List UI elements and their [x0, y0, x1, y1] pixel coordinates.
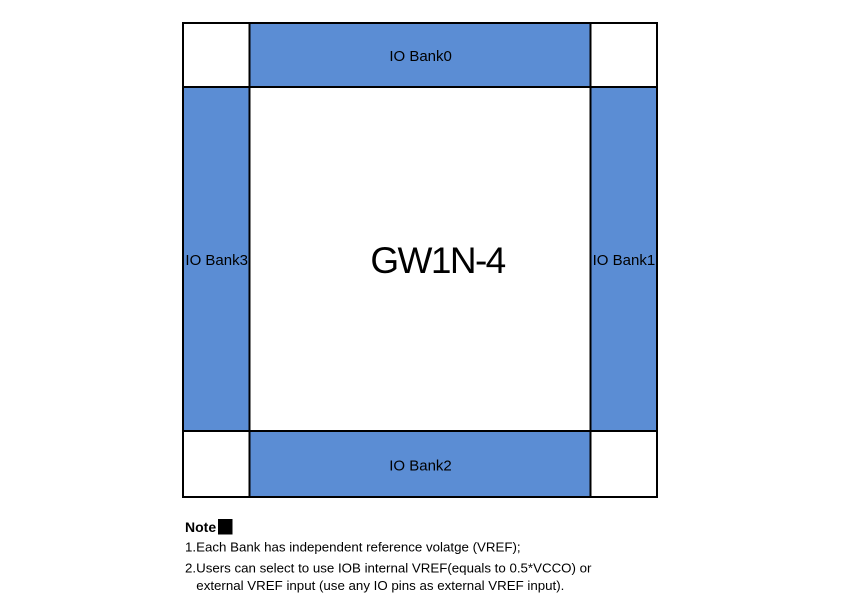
svg-text:IO Bank3: IO Bank3 [185, 252, 248, 269]
svg-text:IO Bank0: IO Bank0 [389, 48, 452, 65]
svg-text:1.Each Bank has independent re: 1.Each Bank has independent reference vo… [185, 540, 521, 555]
svg-text:2.Users can select to use IOB: 2.Users can select to use IOB internal V… [185, 560, 592, 575]
svg-text:external VREF input (use any I: external VREF input (use any IO pins as … [196, 578, 564, 593]
svg-text:IO Bank2: IO Bank2 [389, 458, 452, 475]
svg-text:GW1N-4: GW1N-4 [370, 240, 505, 281]
svg-text:Note: Note [185, 519, 216, 535]
svg-text:IO Bank1: IO Bank1 [593, 252, 656, 269]
